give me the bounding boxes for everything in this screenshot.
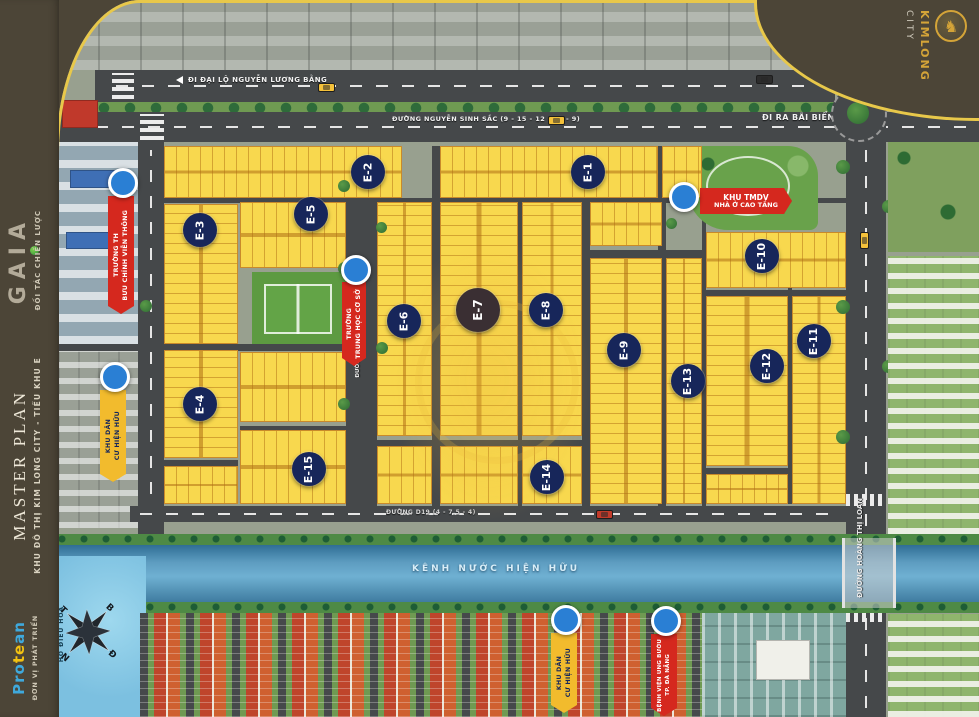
right-villas-south: [888, 614, 979, 717]
crosswalk: [112, 73, 134, 99]
landmark-label: BỆNH VIỆN UNG BƯỚU: [657, 639, 663, 712]
hospital-building: [756, 640, 810, 680]
landmark-label: CƯ HIỆN HỮU: [565, 648, 572, 697]
road-label-hoang-thi-loan: ĐƯỜNG HOÀNG THỊ LOAN: [856, 498, 864, 598]
right-villas: [888, 256, 979, 534]
lot-block: [590, 202, 662, 246]
left-sidebar: GAIA ĐỐI TÁC CHIẾN LƯỢC MASTER PLAN KHU …: [0, 0, 59, 717]
road-label-top-avenue: ĐI ĐẠI LỘ NGUYỄN LƯƠNG BẰNG: [188, 76, 327, 84]
lot-block: [377, 446, 432, 504]
landmark-label: TRƯỜNG: [346, 308, 353, 340]
block-badge-e6: E-6: [387, 304, 421, 338]
tree: [338, 398, 350, 410]
block-badge-e10: E-10: [745, 239, 779, 273]
master-plan-title-block: MASTER PLAN KHU ĐÔ THỊ KIM LONG CITY - T…: [10, 325, 42, 605]
landmark-residential-left: KHU DÂN CƯ HIỆN HỮU: [100, 390, 126, 482]
landmark-label: TRUNG HỌC CƠ SỞ: [355, 289, 362, 359]
block-badge-e15: E-15: [292, 452, 326, 486]
tree: [836, 430, 850, 444]
block-badge-e1: E-1: [571, 155, 605, 189]
poster-subtitle: KHU ĐÔ THỊ KIM LONG CITY - TIỂU KHU E: [33, 357, 42, 574]
lot-block: [240, 352, 346, 422]
kimlong-emblem-icon: ♞: [935, 10, 967, 42]
landmark-hospital: BỆNH VIỆN UNG BƯỚU TP. ĐÀ NẴNG: [651, 634, 677, 716]
strategic-partner-label: ĐỐI TÁC CHIẾN LƯỢC: [34, 210, 42, 310]
school-pitch: [264, 284, 332, 334]
road-dash: [116, 85, 816, 87]
crosswalk: [140, 114, 164, 140]
tree: [338, 180, 350, 192]
developer-block: Protean ĐƠN VỊ PHÁT TRIỂN: [10, 608, 39, 708]
landmark-label: TP. ĐÀ NẴNG: [665, 654, 671, 696]
landmark-label: TRƯỜNG TH: [113, 233, 120, 277]
bridge: [842, 538, 896, 608]
campus-building-red-roof: [62, 100, 98, 128]
brand-suffix: CITY: [904, 10, 914, 42]
crosswalk: [846, 494, 886, 506]
canal-bank-south: [56, 602, 979, 613]
lot-block-e12: [706, 296, 788, 466]
road-dash: [140, 513, 840, 515]
map-pin-commercial: [669, 182, 699, 212]
block-badge-e4: E-4: [183, 387, 217, 421]
car: [860, 232, 869, 249]
map-pin-post-school: [108, 168, 138, 198]
city-blocks-north: [56, 0, 840, 70]
block-badge-e9: E-9: [607, 333, 641, 367]
protean-logo: Protean: [10, 621, 28, 695]
car: [318, 83, 335, 92]
site-plan-map: ĐI ĐẠI LỘ NGUYỄN LƯƠNG BẰNG ĐƯỜNG NGUYỄN…: [56, 0, 979, 717]
landmark-label: CƯ HIỆN HỮU: [114, 411, 121, 460]
canal-label: KÊNH NƯỚC HIỆN HỮU: [412, 564, 580, 574]
lot-block: [706, 474, 788, 504]
car: [596, 510, 613, 519]
poster-title: MASTER PLAN: [10, 390, 30, 541]
road-dash: [150, 150, 152, 520]
map-pin-residential-left: [100, 362, 130, 392]
road-label-d19: ĐƯỜNG D19 (4 - 7.5 - 4): [386, 509, 476, 516]
landmark-label: KHU DÂN: [556, 656, 563, 690]
block-badge-e8: E-8: [529, 293, 563, 327]
map-pin-residential-bottom: [551, 605, 581, 635]
car: [548, 116, 565, 125]
tree: [376, 222, 387, 233]
block-badge-e5: E-5: [294, 197, 328, 231]
lot-block: [164, 466, 238, 504]
block-badge-e14: E-14: [530, 460, 564, 494]
brand-name: KIMLONG: [918, 10, 931, 82]
car: [756, 75, 773, 84]
landmark-secondary-school: TRƯỜNG TRUNG HỌC CƠ SỞ: [342, 282, 366, 366]
tree: [666, 218, 677, 229]
canal-bank-north: [56, 534, 979, 545]
protean-logo-part: te: [10, 644, 28, 663]
protean-logo-part: Pro: [10, 663, 28, 695]
master-plan-poster: ĐI ĐẠI LỘ NGUYỄN LƯƠNG BẰNG ĐƯỜNG NGUYỄN…: [0, 0, 979, 717]
landmark-post-school: TRƯỜNG TH BƯU CHÍNH VIỄN THÔNG: [108, 196, 134, 314]
lot-block-e9: [590, 258, 662, 504]
road-label-beach: ĐI RA BÃI BIỂN: [762, 113, 835, 122]
gaia-logo: GAIA: [6, 216, 31, 304]
tree: [836, 160, 850, 174]
right-park-strip: [888, 142, 979, 252]
kimlong-city-logo: CITY KIMLONG ♞: [904, 10, 967, 82]
block-badge-e2: E-2: [351, 155, 385, 189]
block-badge-e13: E-13: [671, 364, 705, 398]
arrow-left-icon: [176, 76, 183, 84]
landmark-label: NHÀ Ở CAO TẦNG: [714, 202, 778, 210]
lot-block: [440, 146, 658, 198]
block-badge-e11: E-11: [797, 324, 831, 358]
landmark-commercial: KHU TMDV NHÀ Ở CAO TẦNG: [700, 188, 792, 214]
block-badge-e7: E-7: [456, 288, 500, 332]
lot-block-e5: [240, 202, 346, 268]
landmark-label: BƯU CHÍNH VIỄN THÔNG: [122, 210, 129, 301]
tree: [140, 300, 152, 312]
map-pin-secondary-school: [341, 255, 371, 285]
block-badge-e12: E-12: [750, 349, 784, 383]
tree: [376, 342, 388, 354]
landmark-residential-bottom: KHU DÂN CƯ HIỆN HỮU: [551, 633, 577, 713]
protean-logo-part: an: [10, 621, 28, 644]
map-pin-hospital: [651, 606, 681, 636]
developer-label: ĐƠN VỊ PHÁT TRIỂN: [31, 615, 39, 700]
block-badge-e3: E-3: [183, 213, 217, 247]
tree: [836, 300, 850, 314]
landmark-label: KHU DÂN: [105, 419, 112, 453]
gold-line-top: [138, 0, 757, 3]
lot-block: [440, 446, 518, 504]
